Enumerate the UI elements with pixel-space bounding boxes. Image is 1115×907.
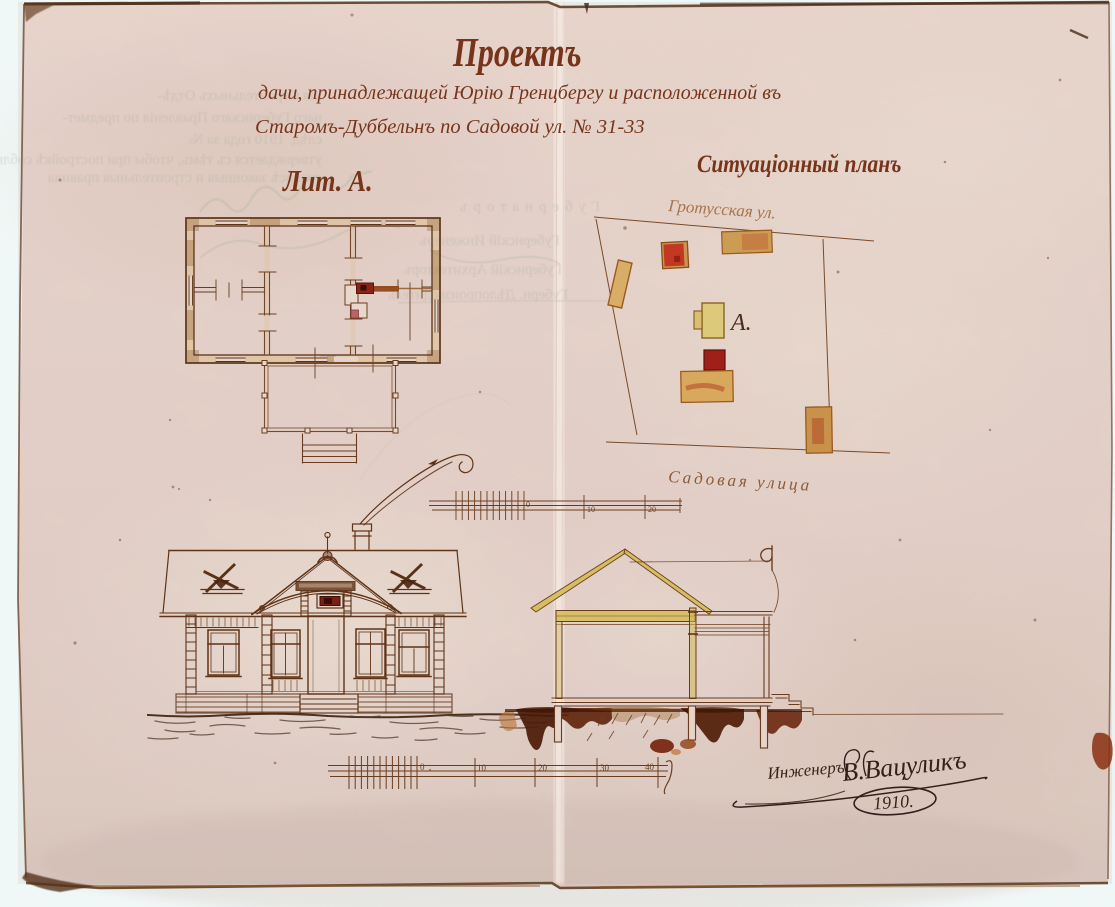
svg-text:20: 20 bbox=[648, 505, 656, 514]
svg-text:дачи, принадлежащей Юрію Гренц: дачи, принадлежащей Юрію Гренцбергу и ра… bbox=[258, 82, 781, 104]
svg-text:Губернскій Архитекторъ: Губернскій Архитекторъ bbox=[404, 262, 562, 278]
svg-text:ли всѣ законныя и строительныя: ли всѣ законныя и строительныя правила bbox=[48, 170, 312, 186]
svg-text:Проектъ: Проектъ bbox=[452, 29, 582, 75]
svg-text:Старомъ-Дуббельнъ по Садовой у: Старомъ-Дуббельнъ по Садовой ул. № 31-33 bbox=[255, 116, 645, 138]
svg-text:А.: А. bbox=[729, 310, 752, 336]
svg-text:10: 10 bbox=[587, 505, 595, 514]
svg-text:0: 0 bbox=[420, 762, 425, 772]
svg-text:утверждается съ тѣмъ, чтобы пр: утверждается съ тѣмъ, чтобы при постройк… bbox=[0, 152, 322, 168]
svg-text:Губернаторъ: Губернаторъ bbox=[454, 199, 600, 215]
svg-text:40: 40 bbox=[645, 762, 655, 772]
svg-text:30: 30 bbox=[600, 763, 610, 773]
svg-text:20: 20 bbox=[538, 763, 548, 773]
svg-text:10: 10 bbox=[477, 763, 487, 773]
svg-text:1910.: 1910. bbox=[872, 791, 914, 814]
svg-text:Лит. А.: Лит. А. bbox=[282, 165, 373, 198]
svg-text:Ситуаціонный планъ: Ситуаціонный планъ bbox=[697, 150, 901, 178]
svg-text:0: 0 bbox=[526, 500, 530, 509]
